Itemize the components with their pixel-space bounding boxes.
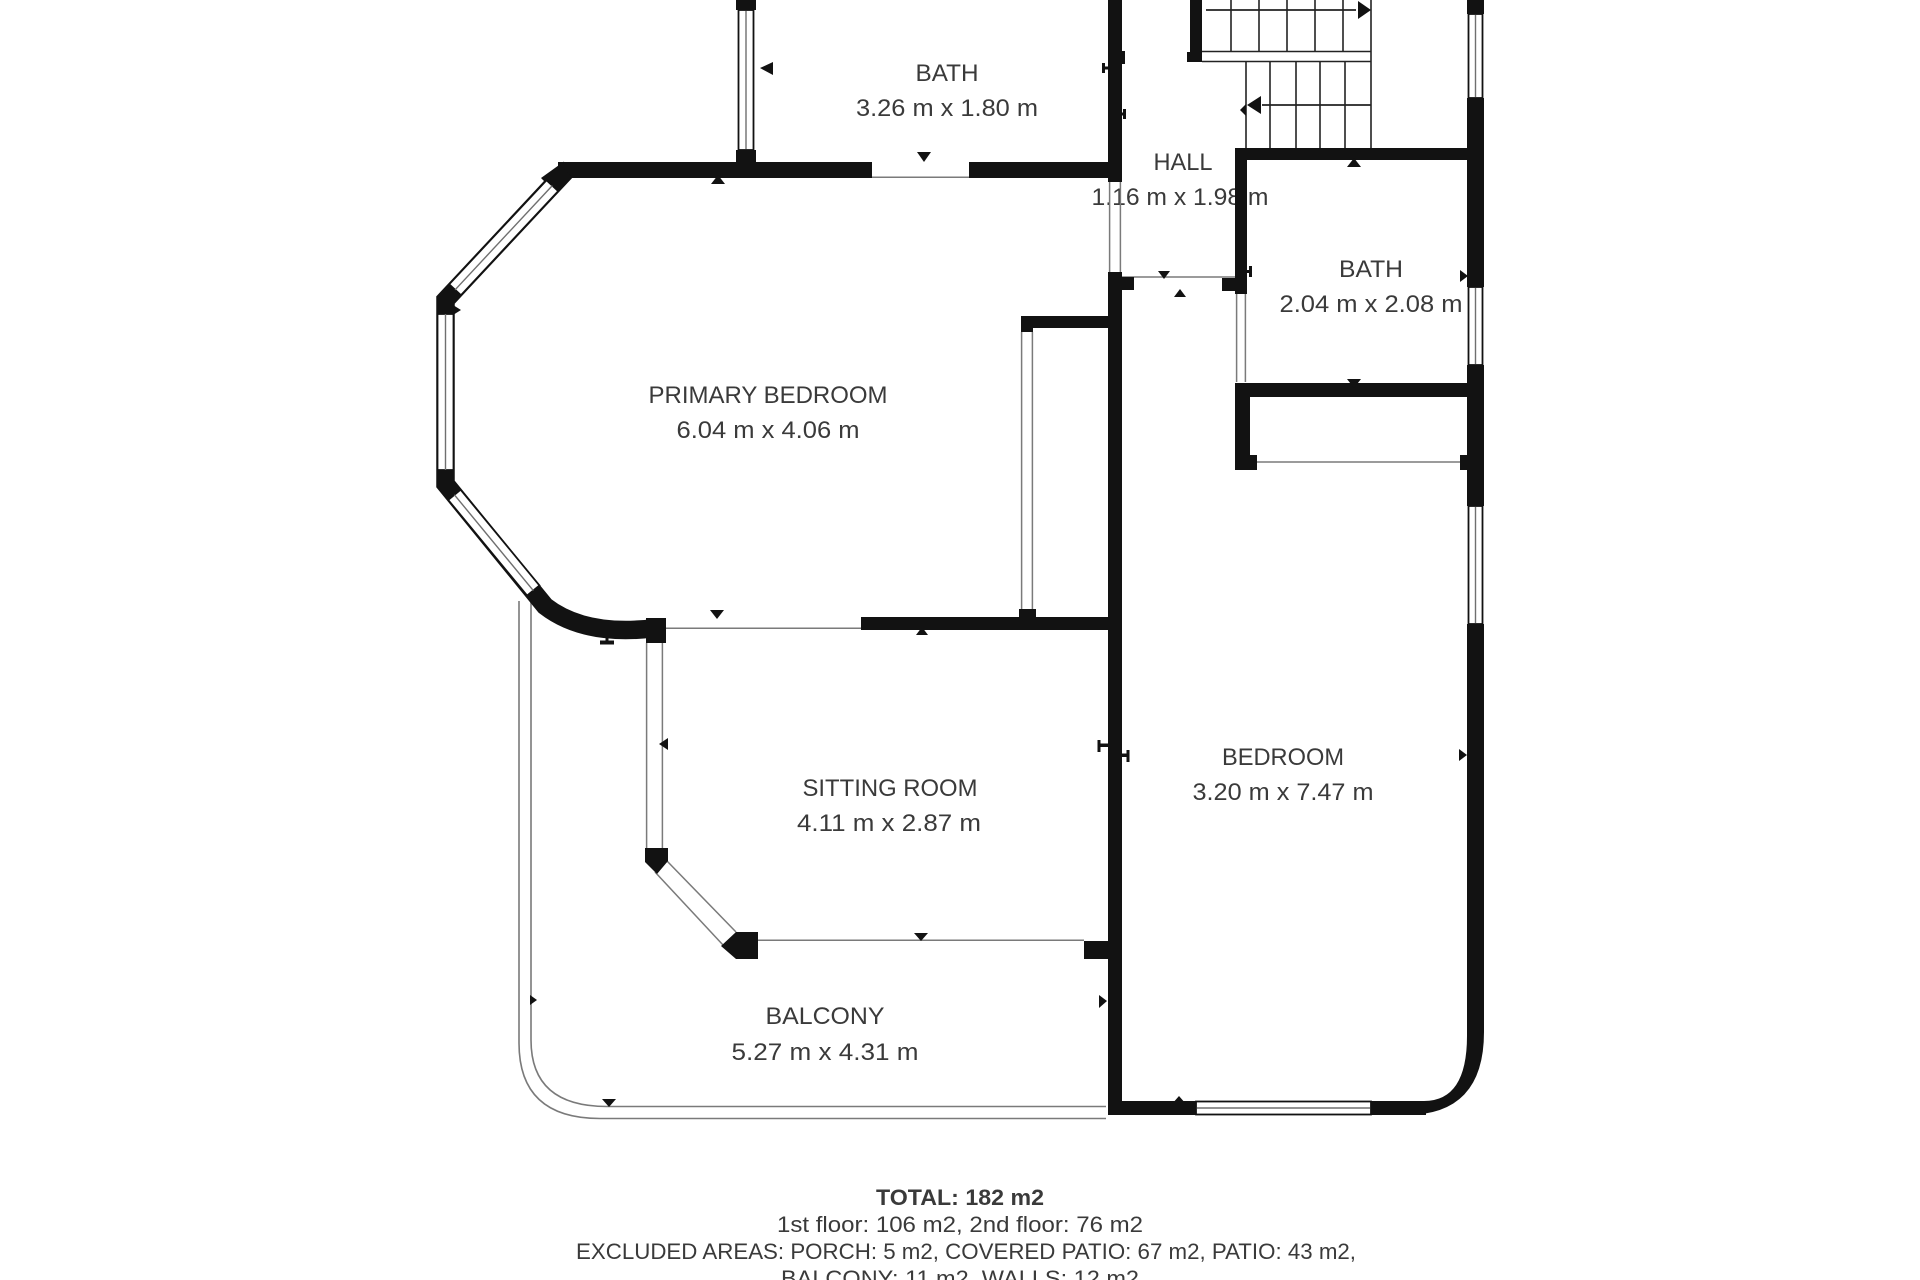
svg-text:HALL: HALL — [1154, 149, 1213, 176]
svg-text:BALCONY: BALCONY — [766, 1003, 885, 1030]
svg-text:TOTAL: 182 m2: TOTAL: 182 m2 — [876, 1185, 1044, 1210]
svg-text:5.27 m x 4.31 m: 5.27 m x 4.31 m — [732, 1039, 919, 1066]
svg-text:SITTING ROOM: SITTING ROOM — [803, 775, 978, 802]
svg-text:BATH: BATH — [916, 60, 979, 87]
svg-text:2.04 m x 2.08 m: 2.04 m x 2.08 m — [1280, 291, 1463, 318]
svg-text:4.11 m x 2.87 m: 4.11 m x 2.87 m — [797, 810, 981, 837]
svg-text:6.04 m x 4.06 m: 6.04 m x 4.06 m — [677, 417, 860, 444]
svg-text:3.26 m x 1.80 m: 3.26 m x 1.80 m — [856, 95, 1038, 122]
svg-text:BATH: BATH — [1339, 256, 1403, 283]
svg-text:BALCONY: 11 m2, WALLS: 12 m2: BALCONY: 11 m2, WALLS: 12 m2 — [781, 1266, 1139, 1280]
svg-text:EXCLUDED AREAS: PORCH: 5 m2, C: EXCLUDED AREAS: PORCH: 5 m2, COVERED PAT… — [576, 1239, 1356, 1264]
svg-text:PRIMARY BEDROOM: PRIMARY BEDROOM — [649, 382, 888, 409]
svg-text:BEDROOM: BEDROOM — [1222, 744, 1344, 771]
svg-text:1st floor: 106 m2, 2nd floor:: 1st floor: 106 m2, 2nd floor: 76 m2 — [777, 1212, 1143, 1237]
svg-text:3.20 m x 7.47 m: 3.20 m x 7.47 m — [1193, 779, 1374, 806]
